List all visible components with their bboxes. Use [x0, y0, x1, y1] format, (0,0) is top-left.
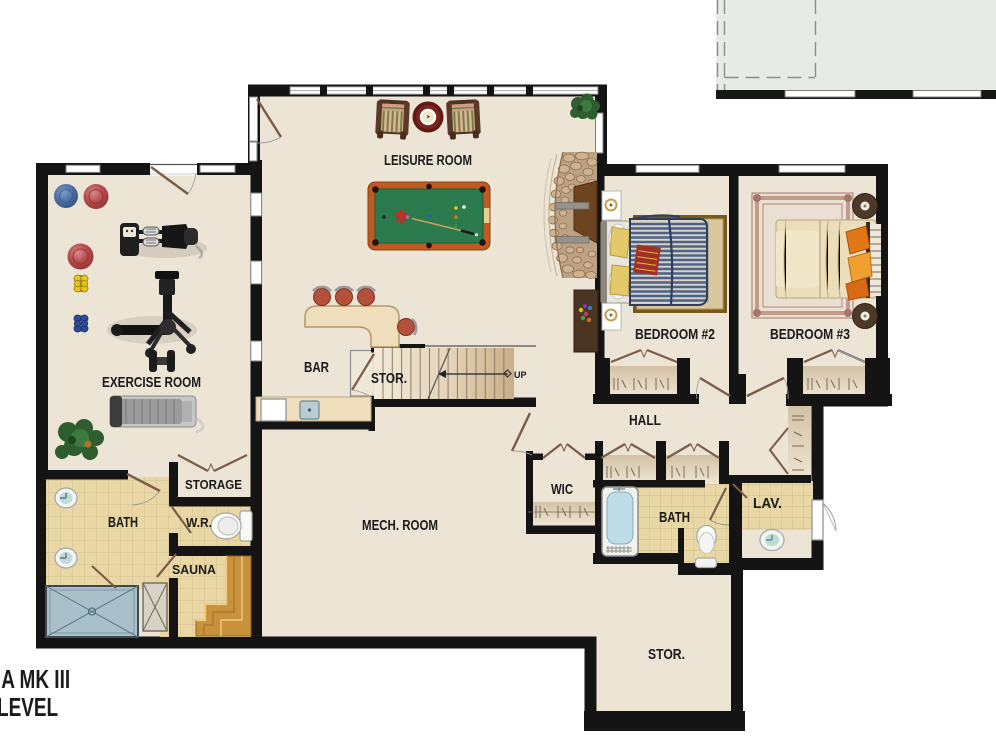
svg-text:SAUNA: SAUNA	[172, 562, 217, 577]
svg-text:STOR.: STOR.	[371, 370, 407, 387]
svg-text:BATH: BATH	[108, 514, 138, 531]
svg-text:EXERCISE ROOM: EXERCISE ROOM	[102, 374, 201, 391]
svg-text:LEISURE ROOM: LEISURE ROOM	[384, 152, 472, 169]
svg-text:WIC: WIC	[551, 481, 573, 498]
svg-text:STOR.: STOR.	[648, 646, 685, 663]
svg-text:MECH. ROOM: MECH. ROOM	[362, 517, 438, 534]
svg-text:BATH: BATH	[659, 509, 690, 526]
svg-text:LAV.: LAV.	[753, 495, 782, 512]
svg-text:IA MK III: IA MK III	[0, 664, 70, 694]
svg-text:UP: UP	[514, 370, 527, 380]
svg-text:HALL: HALL	[629, 412, 661, 429]
svg-text:BAR: BAR	[304, 359, 329, 376]
svg-text:LEVEL: LEVEL	[0, 692, 58, 722]
svg-text:W.R.: W.R.	[186, 515, 212, 530]
svg-text:BEDROOM #2: BEDROOM #2	[635, 326, 715, 343]
svg-text:BEDROOM #3: BEDROOM #3	[770, 326, 850, 343]
svg-text:STORAGE: STORAGE	[185, 477, 242, 492]
